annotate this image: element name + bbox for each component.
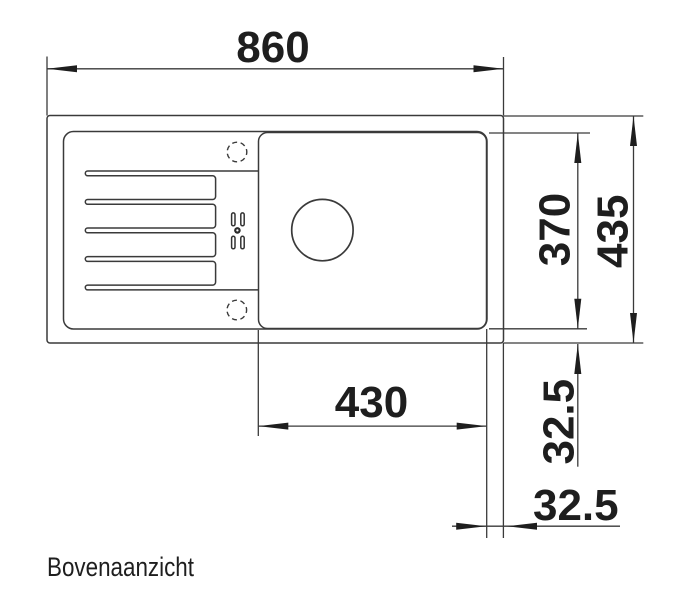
svg-text:430: 430	[335, 378, 408, 427]
svg-text:32.5: 32.5	[533, 481, 619, 530]
svg-text:860: 860	[236, 23, 309, 72]
svg-text:370: 370	[530, 193, 579, 266]
svg-text:Bovenaanzicht: Bovenaanzicht	[47, 552, 195, 582]
svg-text:435: 435	[588, 195, 637, 268]
svg-text:32.5: 32.5	[534, 379, 583, 465]
